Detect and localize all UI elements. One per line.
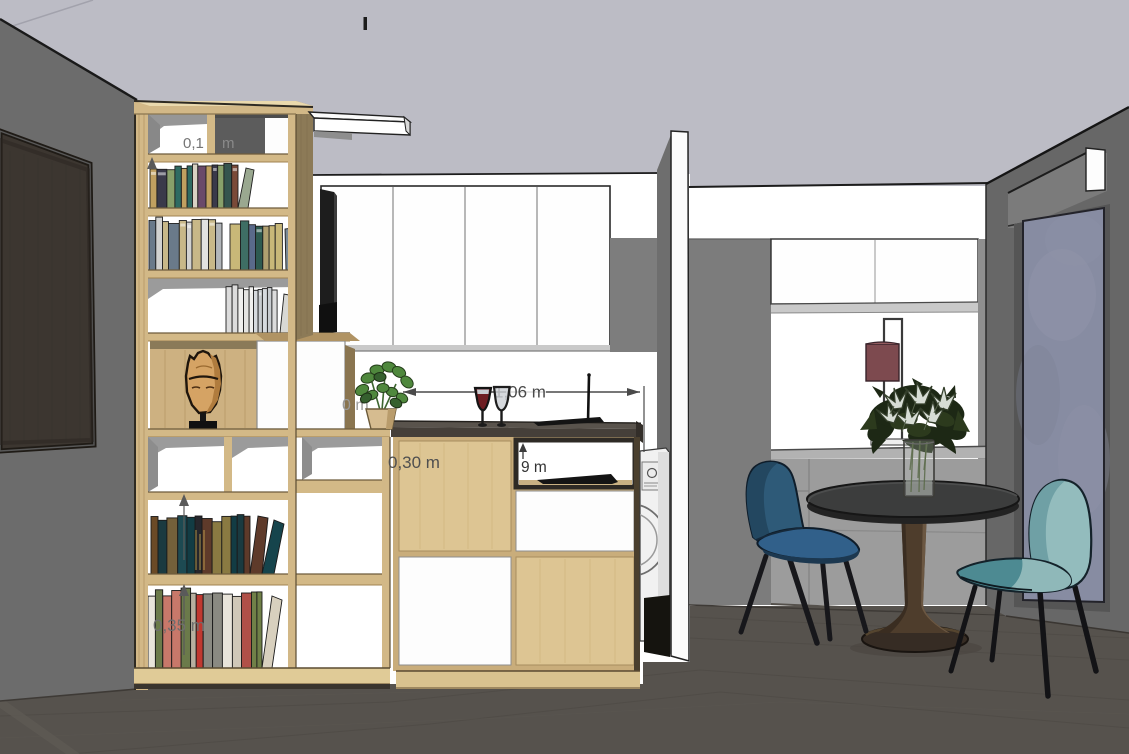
- svg-text:0,35 m: 0,35 m: [153, 616, 205, 635]
- svg-text:9 m: 9 m: [521, 459, 547, 476]
- svg-text:m: m: [222, 135, 235, 152]
- svg-text:0,1: 0,1: [183, 135, 204, 152]
- svg-text:0,30 m: 0,30 m: [388, 453, 440, 472]
